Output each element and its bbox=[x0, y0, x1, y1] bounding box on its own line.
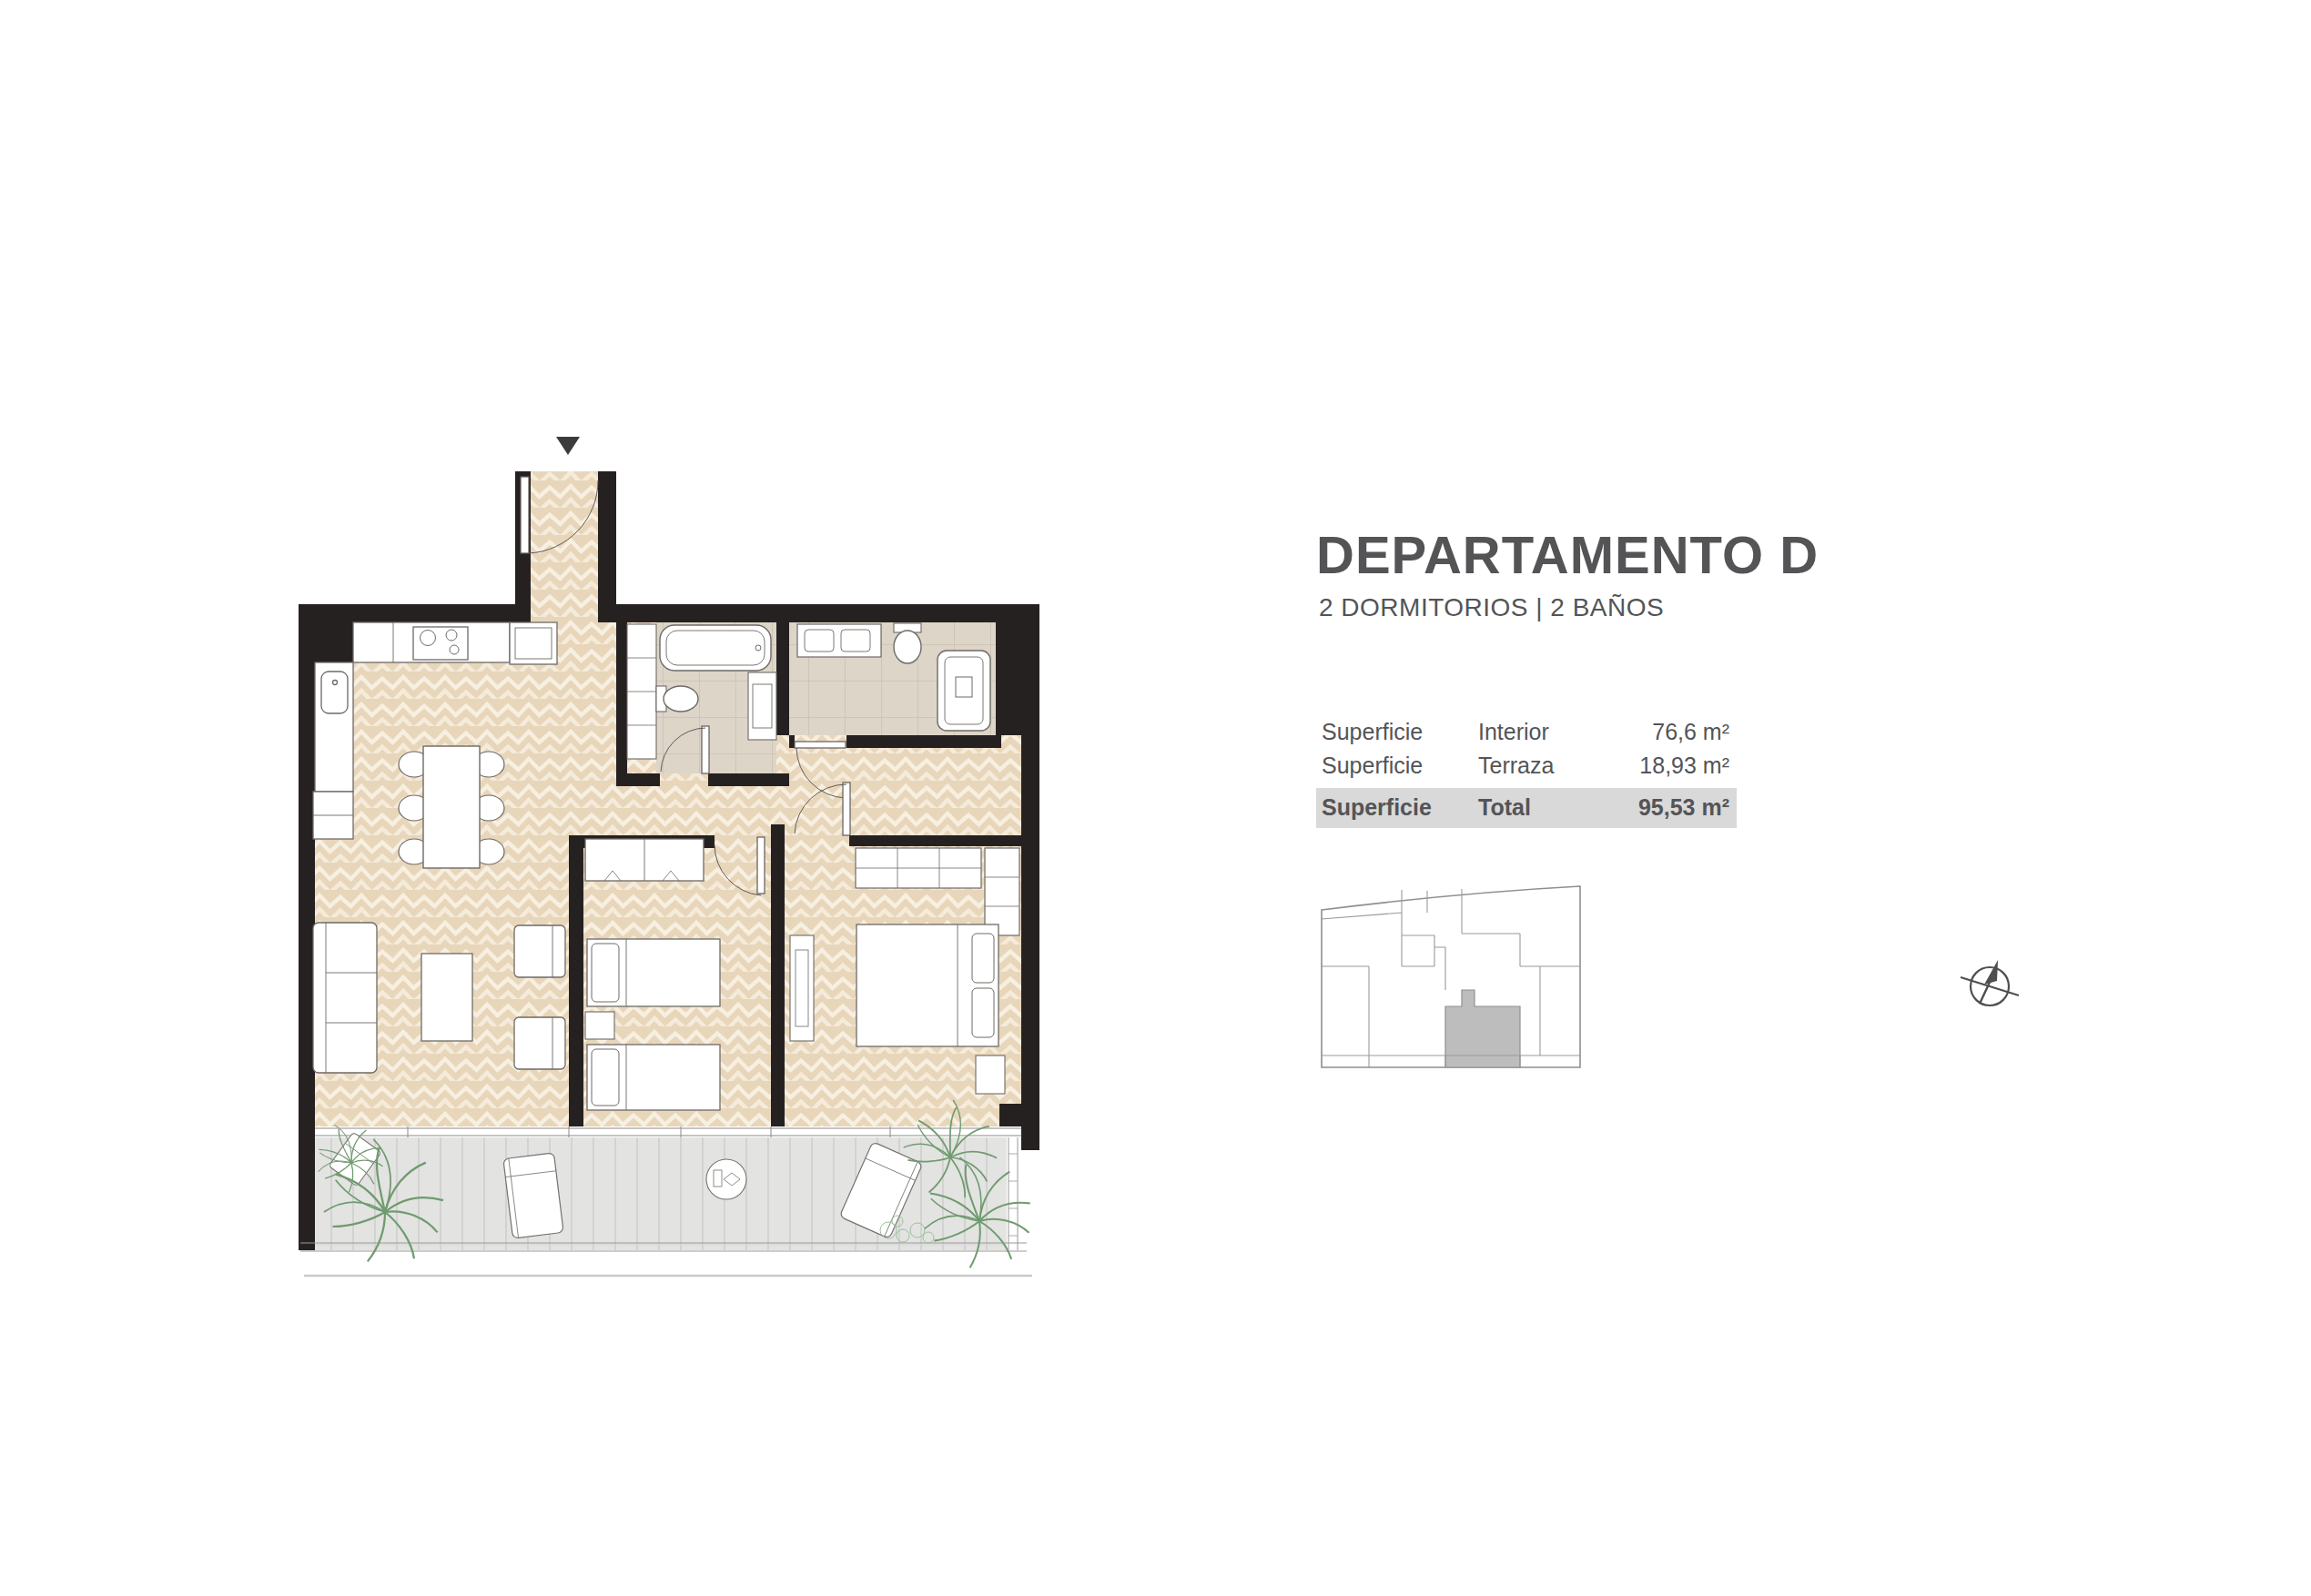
mirror bbox=[790, 935, 814, 1041]
row-value: 18,93 m² bbox=[1639, 752, 1729, 780]
table-row: Superficie Terraza 18,93 m² bbox=[1316, 749, 1737, 783]
toilet bbox=[894, 631, 921, 663]
row-label: Superficie bbox=[1322, 793, 1478, 822]
surface-table: Superficie Interior 76,6 m² Superficie T… bbox=[1316, 715, 1737, 828]
dining-area bbox=[399, 746, 504, 868]
bedroom-1 bbox=[585, 839, 720, 1110]
row-concept: Total bbox=[1478, 793, 1638, 822]
nightstand bbox=[585, 1012, 614, 1039]
sofa bbox=[313, 923, 377, 1073]
nightstand bbox=[976, 1056, 1005, 1094]
row-concept: Interior bbox=[1478, 718, 1652, 746]
bathtub bbox=[660, 625, 771, 671]
coffee-table bbox=[421, 954, 472, 1041]
bed-single bbox=[587, 1045, 720, 1110]
double-vanity bbox=[797, 624, 881, 657]
compass-north-icon bbox=[1955, 950, 2024, 1019]
row-concept: Terraza bbox=[1478, 752, 1639, 780]
kitchen-sink bbox=[321, 672, 348, 713]
shower bbox=[938, 651, 990, 731]
row-label: Superficie bbox=[1322, 718, 1478, 746]
page-title: DEPARTAMENTO D bbox=[1316, 524, 1819, 585]
entry-closet bbox=[627, 624, 656, 759]
table-row-total: Superficie Total 95,53 m² bbox=[1316, 788, 1737, 828]
bed-double bbox=[856, 924, 998, 1046]
toilet bbox=[664, 686, 698, 712]
row-label: Superficie bbox=[1322, 752, 1478, 780]
dining-table bbox=[423, 746, 480, 868]
key-plan bbox=[1318, 879, 1584, 1077]
table-row: Superficie Interior 76,6 m² bbox=[1316, 715, 1737, 749]
bed-single bbox=[587, 939, 720, 1006]
row-value: 95,53 m² bbox=[1638, 793, 1729, 822]
lounge-chair bbox=[503, 1153, 563, 1238]
row-value: 76,6 m² bbox=[1652, 718, 1729, 746]
armchair bbox=[514, 1017, 565, 1069]
floor-plan bbox=[299, 426, 1039, 1290]
page-subtitle: 2 DORMITORIOS | 2 BAÑOS bbox=[1319, 593, 1664, 622]
armchair bbox=[514, 925, 565, 977]
entrance-arrow-icon bbox=[556, 437, 580, 455]
fridge bbox=[510, 622, 557, 664]
cooktop bbox=[413, 627, 468, 660]
terrace-sliding-doors bbox=[315, 1126, 1021, 1137]
